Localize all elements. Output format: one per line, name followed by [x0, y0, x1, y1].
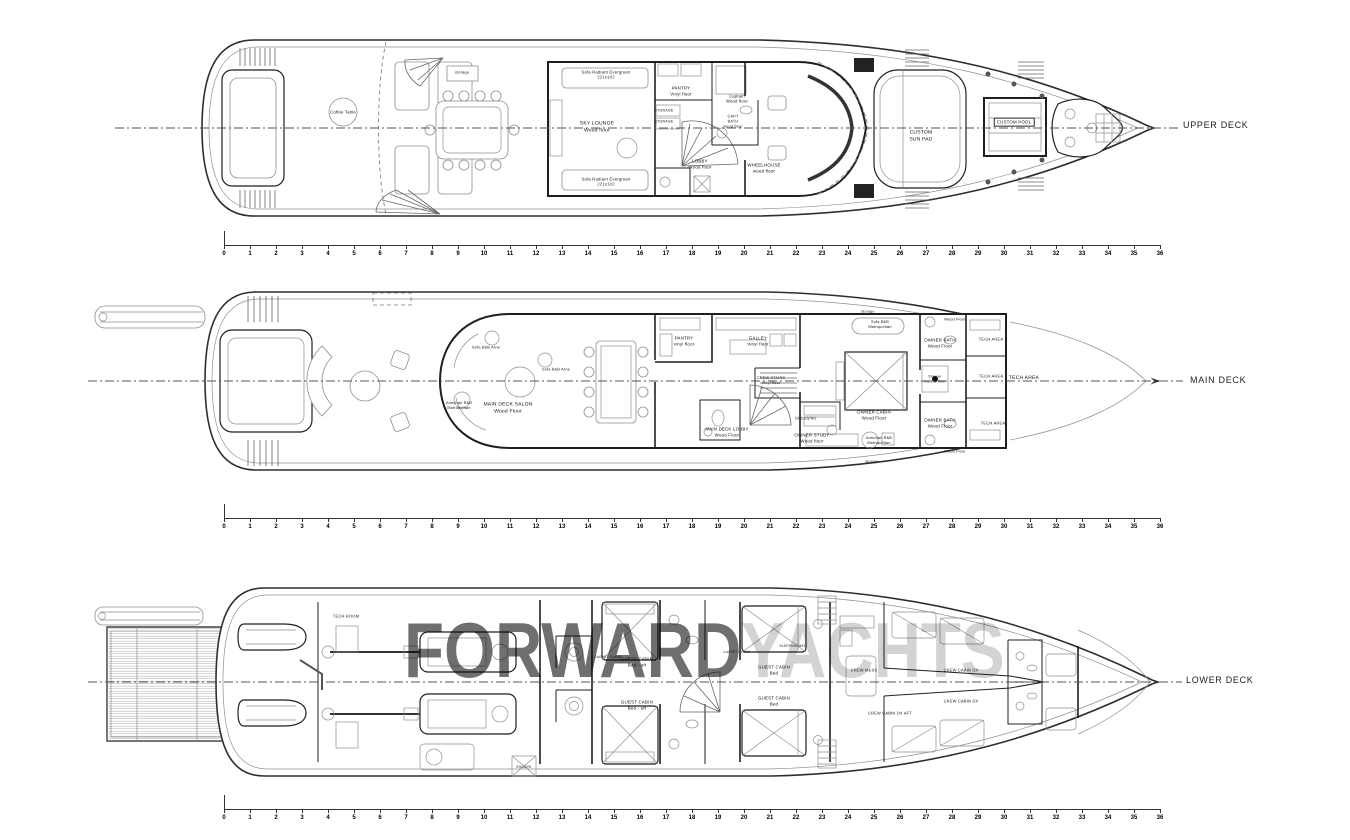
deck-label: LOWER DECK — [1186, 675, 1254, 685]
room-label: SKY LOUNGE Wood floor — [580, 121, 614, 134]
label-layer: Coffee TablestorageSofa Radiant Evergree… — [0, 0, 1350, 840]
room-label: CAPT BATH wood floor — [723, 115, 743, 130]
room-label: TECH AREA — [979, 373, 1003, 378]
room-label: GUEST CABIN Bed — [758, 695, 790, 706]
room-label: Wood Floor — [944, 450, 966, 455]
room-label: storage — [861, 310, 874, 315]
room-label: TECH AREA — [979, 336, 1003, 341]
room-label: CARPET FLOOR — [723, 650, 750, 654]
room-label: GUEST CABIN Bed - aft — [621, 699, 653, 710]
room-label: MAIN DECK LOBBY Wood Floor — [705, 426, 748, 437]
room-label: Wood Floor — [944, 318, 966, 323]
room-label: TECH ROOM — [333, 613, 359, 618]
room-label: GUEST CABIN Bed - aft — [621, 656, 653, 667]
room-label: storage — [865, 460, 878, 465]
room-label: PANTRY Vinyl floor — [670, 85, 691, 96]
room-label: STORAGE — [655, 109, 674, 114]
room-label: OWNER CABIN Wood Floor — [857, 409, 891, 420]
room-label: PANTRY vinyl floor — [674, 335, 695, 346]
room-label: DRESSING — [795, 417, 816, 422]
room-label: Shower marble floor — [924, 374, 945, 383]
room-label: STORAGE — [655, 120, 674, 125]
yacht-deck-plans-page: FORWARDYACHTS 01234567891011121314151617… — [0, 0, 1350, 840]
room-label: CARPET FLOOR — [594, 655, 621, 659]
room-label: CREW CABIN DX — [944, 698, 979, 703]
room-label: TECH AREA — [981, 420, 1005, 425]
room-label: CREW MESS — [851, 667, 877, 672]
room-label: OWNER STUDY Wood floor — [794, 432, 829, 443]
room-label: Sofa B&B Arne — [472, 346, 500, 351]
room-label: WHEELHOUSE wood floor — [747, 162, 780, 173]
room-label: MAIN DECK SALON Wood Floor — [483, 402, 532, 415]
room-label: Sofa Radiant Evergreen 221x102 — [581, 177, 630, 188]
room-label: Sofa B&B Arne — [542, 368, 570, 373]
room-label: GALLEY Vinyl floor — [747, 335, 768, 346]
room-label: GUEST CABIN Bed — [758, 664, 790, 675]
room-label: Coffee Table — [330, 109, 356, 114]
room-label: OWNER BATH Wood Floor — [924, 417, 955, 428]
deck-label: UPPER DECK — [1183, 120, 1249, 130]
room-label: CUSTOM SUN PAD — [909, 130, 932, 143]
deck-label: MAIN DECK — [1190, 375, 1246, 385]
room-label: storage — [455, 71, 469, 76]
room-label: CUSTOM POOL — [994, 118, 1035, 127]
room-label: SLEEPING BED — [779, 644, 806, 648]
room-label: Sofa B&B Metropolitan — [868, 320, 891, 330]
room-label: CREW STAIRS Vinyl floor — [757, 376, 785, 386]
room-label: CREW CABIN DX — [944, 667, 979, 672]
room-label: Armchair B&B Metropolitan — [446, 401, 472, 411]
room-label: ESCAPE — [517, 765, 532, 769]
room-label: OWNER BATH Wood Floor — [924, 337, 955, 348]
room-label: Sofa Radiant Evergreen 221x102 — [581, 70, 630, 81]
room-label: Captain Wood floor — [726, 94, 748, 105]
room-label: CREW CABIN DX AFT — [868, 710, 912, 715]
room-label: Armchair B&B Metropolitan — [866, 436, 892, 446]
room-label: TECH AREA — [1009, 375, 1039, 382]
room-label: LOBBY Wood floor — [688, 158, 711, 169]
